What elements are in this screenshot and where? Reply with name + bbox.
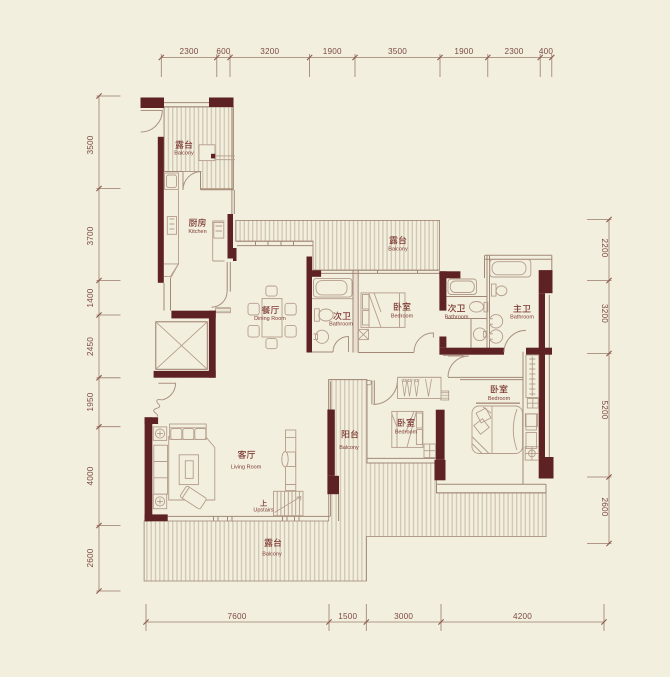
svg-text:Bathroom: Bathroom (329, 322, 353, 328)
svg-text:4200: 4200 (513, 612, 532, 621)
svg-text:3500: 3500 (388, 47, 407, 56)
svg-text:Bathroom: Bathroom (510, 314, 534, 320)
svg-text:Balcony: Balcony (174, 151, 194, 157)
svg-text:Kitchen: Kitchen (188, 229, 206, 235)
svg-text:Bedroom: Bedroom (391, 314, 414, 320)
svg-text:2300: 2300 (179, 47, 198, 56)
svg-text:1900: 1900 (454, 47, 473, 56)
svg-text:3000: 3000 (394, 612, 413, 621)
svg-text:Balcony: Balcony (339, 445, 359, 451)
svg-text:2600: 2600 (600, 497, 609, 516)
svg-text:Upstairs: Upstairs (253, 508, 273, 514)
svg-text:3500: 3500 (86, 135, 95, 154)
svg-text:2450: 2450 (86, 337, 95, 356)
svg-text:2600: 2600 (86, 548, 95, 567)
svg-text:Bedroom: Bedroom (395, 430, 418, 436)
svg-text:Balcony: Balcony (388, 247, 408, 253)
svg-text:Dining Room: Dining Room (254, 316, 286, 322)
svg-text:3200: 3200 (600, 304, 609, 323)
svg-text:Living Room: Living Room (231, 465, 262, 471)
svg-text:Balcony: Balcony (262, 552, 282, 558)
svg-text:2300: 2300 (504, 47, 523, 56)
svg-text:400: 400 (539, 47, 554, 56)
svg-text:1900: 1900 (323, 47, 342, 56)
svg-text:4000: 4000 (86, 466, 95, 485)
svg-text:1950: 1950 (86, 392, 95, 411)
svg-text:2200: 2200 (600, 238, 609, 257)
svg-text:600: 600 (216, 47, 231, 56)
svg-text:3700: 3700 (86, 226, 95, 245)
svg-text:Bedroom: Bedroom (488, 396, 511, 402)
svg-text:3200: 3200 (260, 47, 279, 56)
svg-text:7600: 7600 (227, 612, 246, 621)
svg-text:Bathroom: Bathroom (445, 315, 469, 321)
svg-text:1400: 1400 (86, 288, 95, 307)
svg-text:5200: 5200 (600, 400, 609, 419)
svg-text:1500: 1500 (338, 612, 357, 621)
